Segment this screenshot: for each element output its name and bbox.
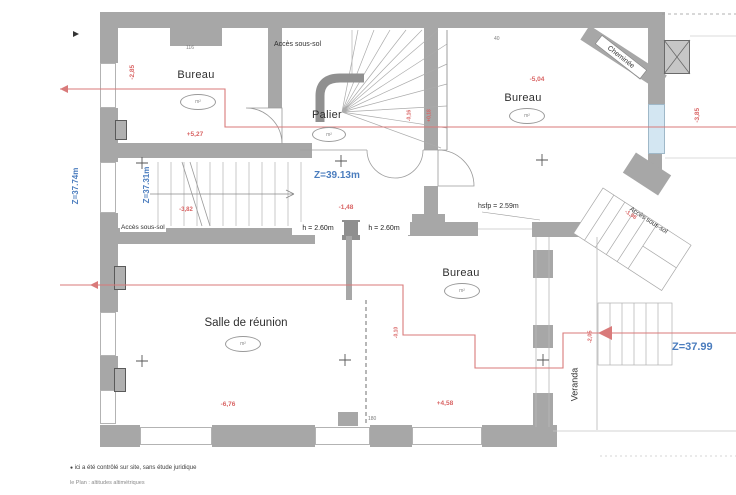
area-oval-bureau-s: m² [444, 283, 480, 299]
dim-bottom-wall: 180 [368, 417, 376, 422]
red-dim-nw-left: -2,85 [130, 52, 137, 92]
height-label-left: h = 2.60m [292, 222, 344, 235]
red-dim-ne-top: -5,04 [517, 77, 557, 84]
room-label-bureau-nw: Bureau [166, 70, 226, 81]
footer-note-line2: le Plan : altitudes altimétriques [70, 481, 145, 487]
footer-bullet: ● [70, 465, 73, 471]
red-dim-palier-a: -0,16 [408, 96, 413, 136]
floor-plan-canvas: Bureau m² Palier m² Bureau m² Bureau m² … [0, 0, 736, 495]
area-oval-palier: m² [312, 127, 346, 142]
red-dim-palier-b: +0,18 [428, 96, 433, 136]
door-swings [246, 108, 474, 186]
chimney-x-icon [664, 40, 690, 74]
area-oval-salle: m² [225, 336, 261, 352]
room-label-veranda: Veranda [571, 355, 580, 415]
section-line-upper [60, 89, 736, 127]
stair-winder [300, 30, 447, 178]
area-text: m² [326, 132, 332, 138]
height-text: h = 2.60m [368, 225, 399, 232]
red-dim-stair-left: -3,82 [166, 207, 206, 213]
area-text: m² [195, 99, 201, 105]
height-label-hsfp: hsfp = 2.59m [478, 203, 519, 210]
red-dim-partition: -0,10 [395, 313, 400, 353]
area-text: m² [459, 288, 465, 294]
room-label-palier: Palier [297, 110, 357, 121]
red-dim-nw-bottom: +5,27 [175, 132, 215, 139]
hsfp-leader-line [482, 212, 540, 220]
survey-cross-marks [136, 154, 549, 367]
height-label-right: h = 2.60m [358, 222, 410, 235]
area-text: m² [524, 113, 530, 119]
level-palier: Z=39.13m [314, 171, 360, 181]
height-text: h = 2.60m [302, 225, 333, 232]
acces-sous-sol-top: Accès sous-sol [274, 41, 321, 48]
dim-top-wall: 116 [186, 46, 194, 51]
red-dim-right-edge: -3,85 [695, 95, 702, 135]
level-stair-left: Z=37.31m [143, 155, 151, 215]
red-dim-veranda: -2,05 [588, 317, 594, 357]
room-label-bureau-s: Bureau [431, 268, 491, 279]
red-dim-center: -1,48 [326, 205, 366, 212]
north-tick-mark [73, 31, 79, 37]
red-dim-salle-bottom: -6,76 [208, 402, 248, 409]
room-label-bureau-ne: Bureau [493, 93, 553, 104]
acces-sous-sol-left: Accès sous-sol [120, 225, 166, 232]
footer-text-1: ici a été contrôlé sur site, sans étude … [75, 465, 197, 471]
level-stair-right: Z=37.99 [672, 342, 713, 353]
room-label-salle-reunion: Salle de réunion [186, 318, 306, 330]
area-oval-bureau-nw: m² [180, 94, 216, 110]
footer-note-line1: ● ici a été contrôlé sur site, sans étud… [70, 465, 196, 471]
area-text: m² [240, 341, 246, 347]
red-dim-bureau-s-bottom: +4,58 [425, 401, 465, 408]
level-left-margin: Z=37.74m [72, 156, 80, 216]
stair-left [150, 162, 301, 226]
area-oval-bureau-ne: m² [509, 108, 545, 124]
dim-ne-corner: 40 [494, 37, 500, 42]
